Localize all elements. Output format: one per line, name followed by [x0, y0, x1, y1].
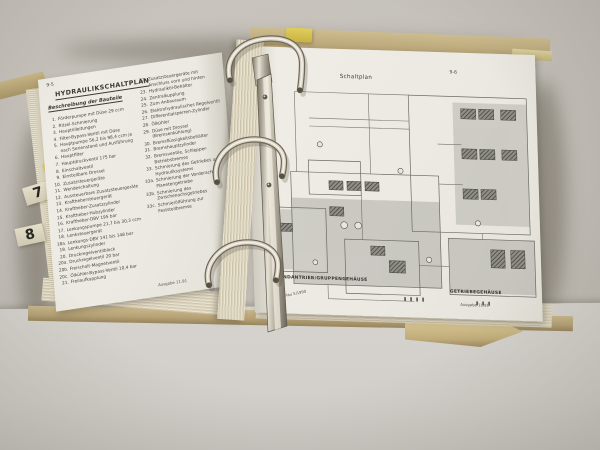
part-number: 22.	[137, 78, 149, 91]
part-number: 32.	[143, 154, 155, 167]
parts-list-column-1: 1. Förderpumpe mit Düse 29 ccm 2. Ritzel…	[47, 106, 149, 289]
part-number: 33b.	[146, 191, 158, 204]
part-number: 29.	[141, 129, 153, 142]
left-page-footer: Ausgabe 11.91	[158, 278, 187, 287]
index-tab-8-label: 8	[24, 226, 37, 244]
yellow-divider-tab-top	[286, 27, 313, 42]
index-tab-7-label: 7	[31, 184, 45, 202]
left-page-number: 9-5	[46, 83, 54, 89]
left-page: 9-5 HYDRAULIKSCHALTPLAN Beschreibung der…	[38, 52, 240, 311]
part-number: 33.	[144, 167, 156, 180]
part-number: 21.	[60, 280, 71, 287]
right-page: 9-6 Schaltplan	[247, 46, 543, 321]
part-number: 5.	[49, 144, 61, 157]
binder-photo-scene: 7 8 9-5 HYDRAULIKSCHALTPLAN Beschreibung…	[0, 0, 600, 450]
part-number: 33a.	[145, 179, 157, 192]
right-page-footer-right: Ausgabe 11.91	[460, 302, 489, 308]
part-number: 33c.	[147, 203, 159, 216]
